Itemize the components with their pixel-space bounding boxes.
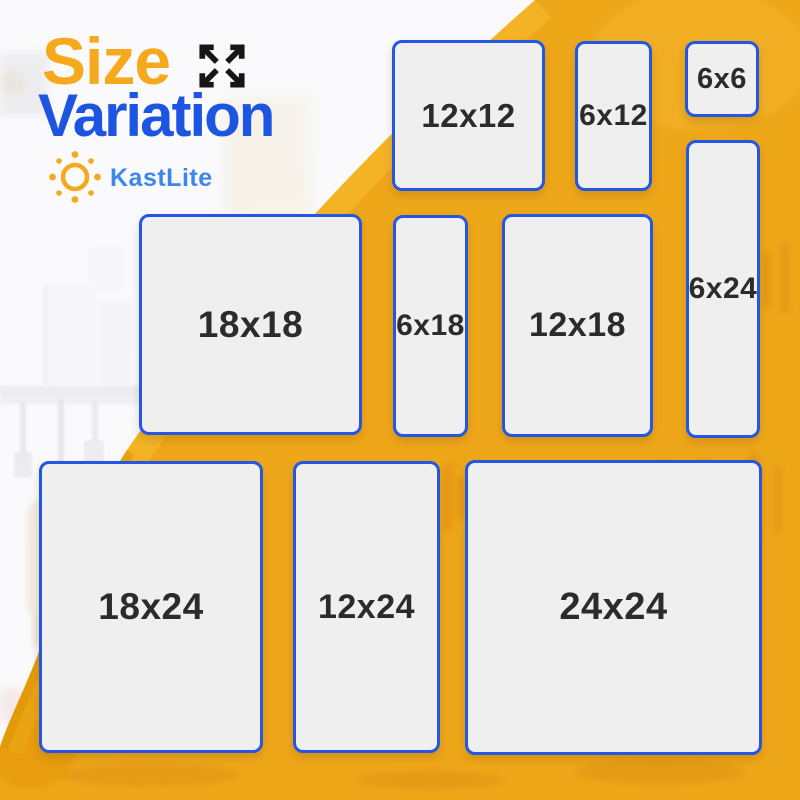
- panel-size-label: 6x24: [689, 272, 758, 306]
- panel-size-label: 12x18: [529, 306, 626, 345]
- panel-size-label: 24x24: [559, 586, 667, 629]
- panel-size-label: 6x6: [697, 63, 747, 96]
- panels-layer: 12x126x126x66x2418x186x1812x1818x2412x24…: [0, 0, 800, 800]
- size-panel-12x24: 12x24: [293, 461, 440, 753]
- size-panel-18x24: 18x24: [39, 461, 263, 753]
- size-panel-18x18: 18x18: [139, 214, 362, 435]
- size-panel-6x12: 6x12: [575, 41, 652, 191]
- panel-size-label: 18x18: [198, 304, 303, 346]
- size-panel-6x24: 6x24: [686, 140, 760, 438]
- panel-size-label: 6x18: [396, 309, 465, 343]
- panel-size-label: 18x24: [98, 586, 203, 628]
- size-panel-6x18: 6x18: [393, 215, 468, 437]
- panel-size-label: 6x12: [579, 99, 648, 133]
- size-panel-12x18: 12x18: [502, 214, 653, 437]
- size-panel-24x24: 24x24: [465, 460, 762, 755]
- size-variation-infographic: 12x126x126x66x2418x186x1812x1818x2412x24…: [0, 0, 800, 800]
- size-panel-12x12: 12x12: [392, 40, 545, 191]
- size-panel-6x6: 6x6: [685, 41, 759, 117]
- panel-size-label: 12x24: [318, 588, 415, 627]
- panel-size-label: 12x12: [421, 97, 515, 135]
